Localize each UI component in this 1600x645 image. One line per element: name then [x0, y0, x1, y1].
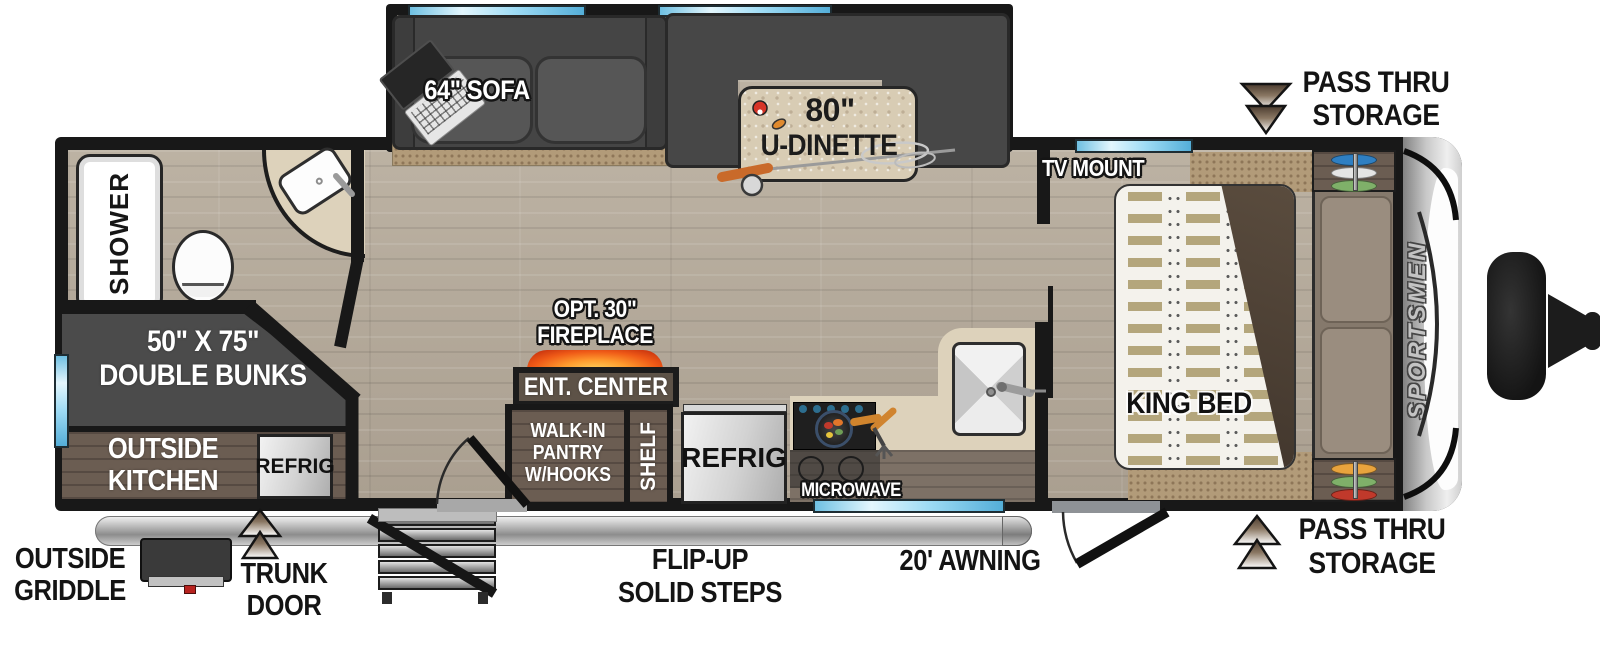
kitchen-window [813, 499, 1005, 513]
kitchen-bedroom-wall [1035, 322, 1048, 503]
shelf: SHELF [630, 410, 667, 502]
dinette-label: U-DINETTE [749, 130, 909, 162]
burner-knob [799, 405, 807, 413]
bunks-size-label: 50" X 75" [93, 326, 313, 358]
shelf-label: SHELF [637, 422, 661, 491]
kitchen-sink [952, 342, 1026, 436]
ent-center: ENT. CENTER [513, 367, 679, 407]
sofa-label: 64" SOFA [411, 76, 543, 104]
burner-ring [798, 456, 824, 482]
sink-drain [986, 387, 996, 397]
galley-refrig: REFRIG [681, 412, 787, 504]
galley-refrig-label: REFRIG [681, 442, 787, 474]
hanger-rod [1353, 153, 1358, 191]
fireplace-opt-label: OPT. 30" [525, 297, 666, 322]
outside-kitchen-line1: OUTSIDE [83, 434, 243, 464]
flip-up-steps [378, 512, 496, 602]
pan-food [824, 422, 833, 429]
shower: SHOWER [76, 154, 163, 312]
bath-right-wall [351, 147, 364, 262]
hitch-coupler [1584, 312, 1600, 350]
pantry-label-2: PANTRY [519, 442, 618, 464]
bath-bottom-wall [56, 300, 256, 314]
sofa-armrest-right [645, 18, 665, 147]
pan-food [826, 432, 833, 438]
tv-mount-label: TV MOUNT [1042, 156, 1165, 180]
burner-knob [813, 405, 821, 413]
pantry-label-1: WALK-IN [519, 420, 618, 442]
bedroom-window [1075, 139, 1193, 153]
bedroom-halfwall [1048, 286, 1053, 398]
pass-thru-arrow-up [1235, 516, 1279, 568]
rear-wall-window [54, 354, 69, 448]
microwave-label: MICROWAVE [787, 481, 915, 501]
bunks-label: DOUBLE BUNKS [84, 360, 322, 392]
wardrobe-top [1312, 150, 1396, 192]
step-foot [478, 592, 488, 604]
hitch-tongue [1548, 294, 1592, 368]
bedroom-door-threshold [1052, 501, 1160, 513]
hanger-rod [1353, 461, 1358, 499]
outside-kitchen-line2: KITCHEN [83, 466, 243, 496]
pass-thru-arrow-down [1242, 84, 1290, 133]
floorplan-canvas: SPORTSMEN 64" SOFA 80" U-DINETTE SHOWER … [0, 0, 1600, 645]
headboard-cushion [1320, 196, 1392, 323]
outside-griddle-label: OUTSIDE GRIDDLE [8, 543, 131, 607]
pan-food [833, 419, 843, 426]
pass-thru-storage-top: PASS THRU STORAGE [1300, 66, 1451, 132]
pantry-label-3: W/HOOKS [519, 464, 618, 486]
trunk-door-line1: TRUNK [231, 558, 337, 590]
awning-label: 20' AWNING [889, 546, 1051, 576]
outside-griddle-knob [184, 585, 196, 594]
bath-sink-drain [314, 176, 324, 186]
king-bed-label: KING BED [1114, 388, 1264, 420]
pass-thru-top-line2: STORAGE [1300, 99, 1451, 132]
trunk-door-line2: DOOR [231, 590, 337, 622]
bedroom-door-panel [1077, 512, 1167, 564]
pass-thru-bottom-line2: STORAGE [1296, 547, 1447, 581]
steps-line1: FLIP-UP [612, 544, 788, 577]
bed-headboard [1312, 192, 1396, 458]
headboard-cushion [1320, 327, 1392, 454]
burner-knob [855, 405, 863, 413]
toilet [172, 230, 234, 304]
ent-center-label: ENT. CENTER [524, 373, 668, 402]
frying-pan [815, 410, 853, 448]
bedroom-door-arc [1063, 512, 1077, 563]
propane-tank-cover [1487, 252, 1546, 400]
entry-door-threshold [437, 499, 527, 512]
mattress-stripe [1186, 192, 1220, 466]
shower-label: SHOWER [104, 172, 135, 295]
outside-refrig-label: REFRIG [255, 455, 334, 479]
burner-ring [838, 456, 864, 482]
mattress-dots [1166, 192, 1182, 466]
step-foot [382, 592, 392, 604]
pass-thru-bottom-line1: PASS THRU [1296, 513, 1447, 547]
walk-in-pantry: WALK-IN PANTRY W/HOOKS [512, 410, 624, 502]
outside-kitchen-refrig: REFRIG [257, 434, 333, 499]
outside-griddle-line2: GRIDDLE [8, 575, 131, 607]
galley-counter-edge [683, 404, 787, 412]
fireplace-label: FIREPLACE [525, 323, 666, 348]
awning-tube-endcap [1002, 516, 1032, 546]
pass-thru-top-line1: PASS THRU [1300, 66, 1451, 99]
brand-logo: SPORTSMEN [1404, 180, 1442, 480]
wardrobe-bottom [1312, 458, 1396, 502]
mattress-stripe [1128, 192, 1162, 466]
king-bed [1114, 184, 1296, 470]
awning-tube [95, 516, 1032, 546]
steps-line2: SOLID STEPS [612, 577, 788, 610]
pan-food [835, 429, 843, 435]
pass-thru-storage-bottom: PASS THRU STORAGE [1296, 513, 1447, 581]
flip-up-steps-label: FLIP-UP SOLID STEPS [612, 544, 788, 610]
sofa-seat-cushion [535, 56, 647, 144]
dinette-size-label: 80" [760, 94, 900, 128]
trunk-door-label: TRUNK DOOR [231, 558, 337, 622]
outside-griddle-line1: OUTSIDE [8, 543, 131, 575]
toilet-seat-line [182, 283, 224, 297]
